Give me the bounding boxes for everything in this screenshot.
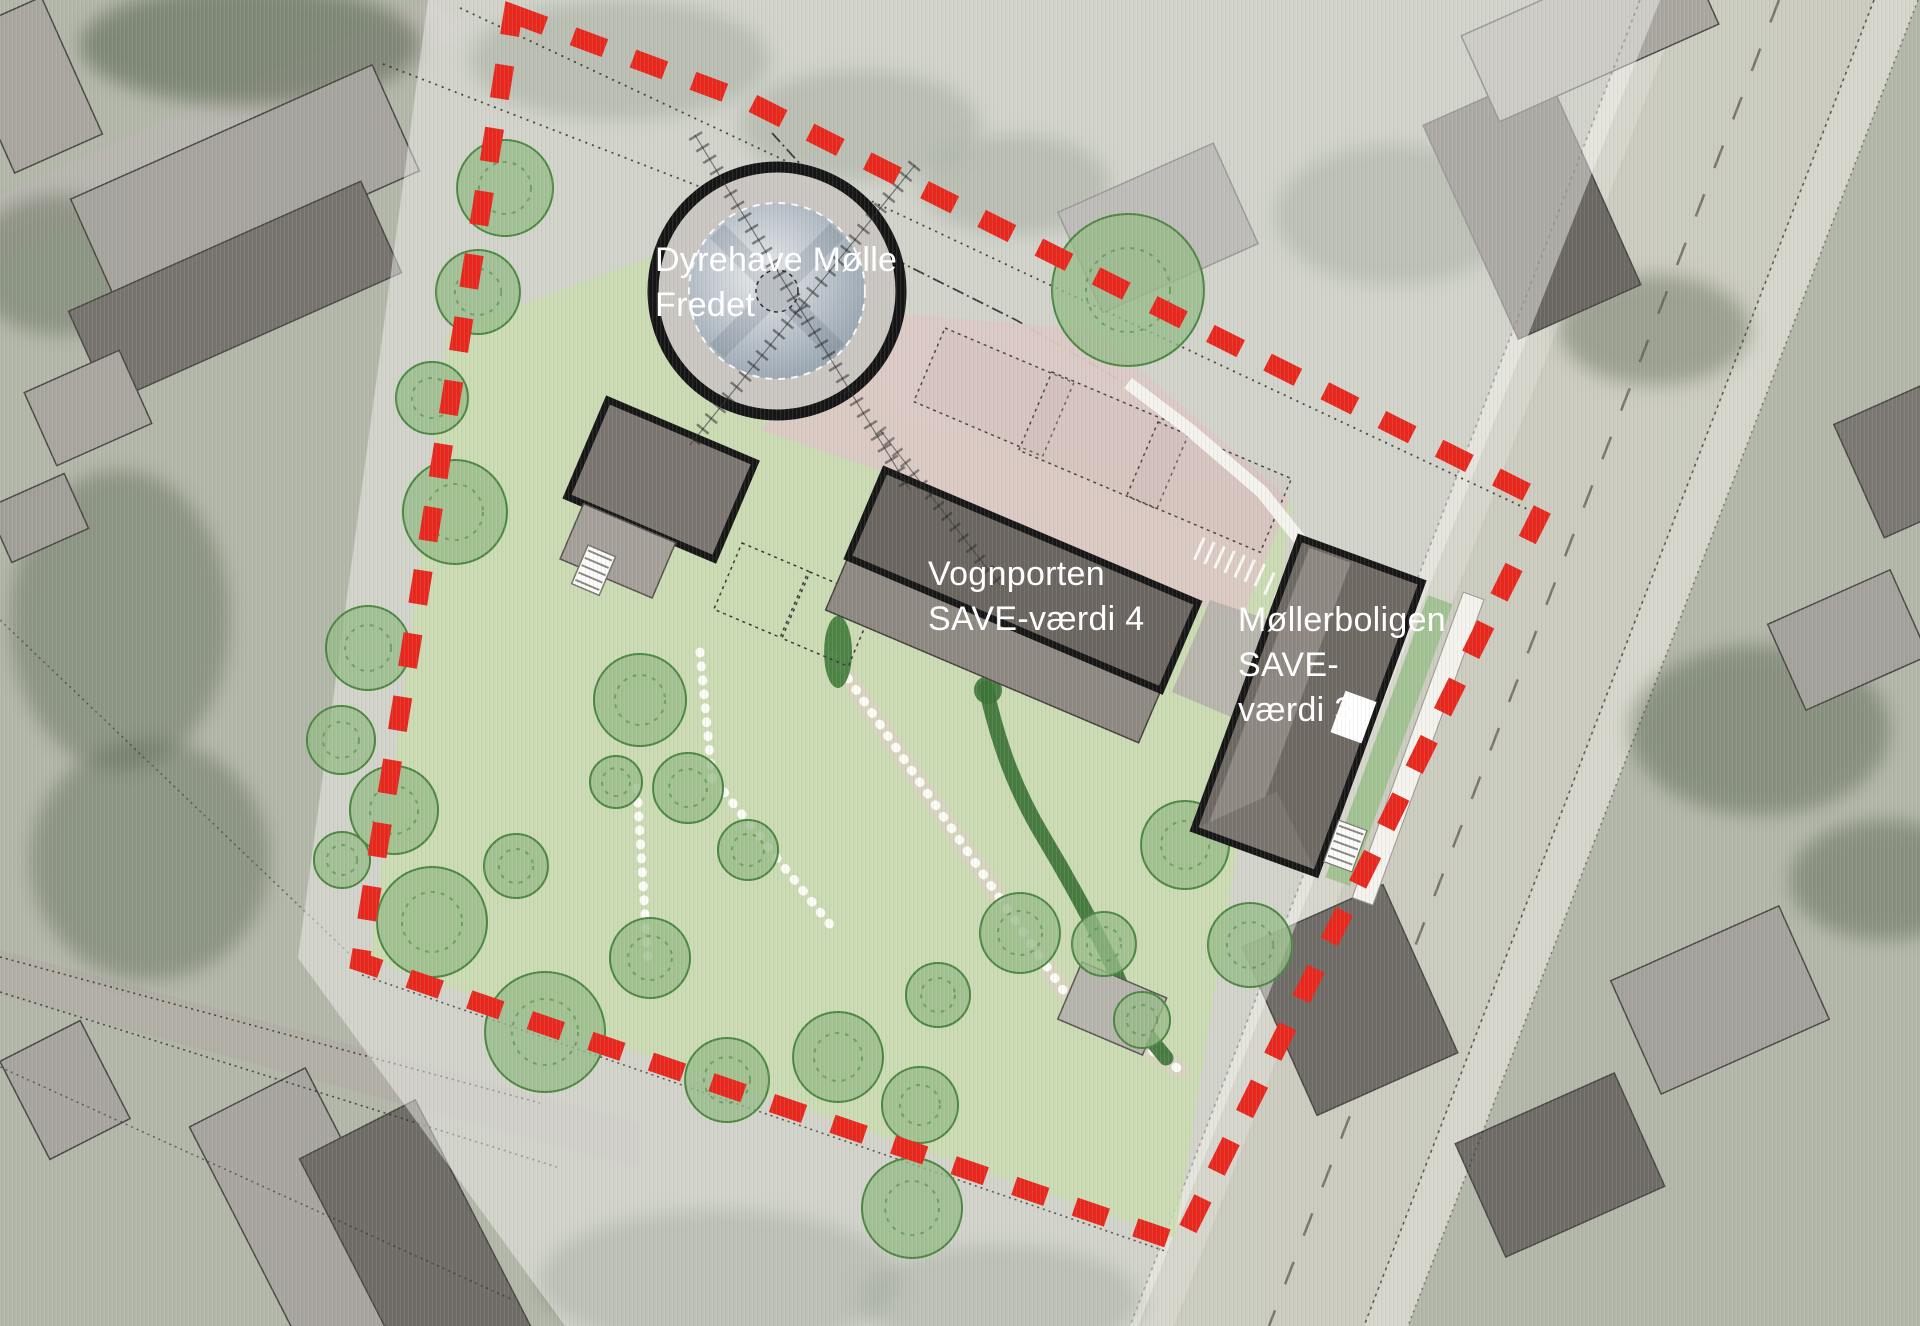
- tree: [980, 893, 1060, 973]
- tree: [882, 1067, 958, 1143]
- tree: [307, 706, 375, 774]
- tree: [718, 820, 778, 880]
- tree: [610, 918, 690, 998]
- tree: [1052, 214, 1204, 366]
- tree: [1114, 992, 1170, 1048]
- tree: [653, 753, 723, 823]
- tree: [377, 867, 487, 977]
- site-plan-graphics: [0, 0, 1920, 1326]
- site-plan-map: Dyrehave Mølle Fredet Vognporten SAVE-væ…: [0, 0, 1920, 1326]
- tree: [906, 963, 970, 1027]
- mill: [653, 167, 901, 415]
- tree: [594, 654, 686, 746]
- tree: [1072, 912, 1136, 976]
- tree: [590, 756, 642, 808]
- tree: [314, 832, 370, 888]
- tree: [326, 606, 410, 690]
- tree: [862, 1158, 962, 1258]
- tree: [403, 460, 507, 564]
- tree: [793, 1012, 883, 1102]
- tree: [484, 834, 548, 898]
- tree: [1208, 903, 1292, 987]
- cypress-tree: [824, 616, 852, 688]
